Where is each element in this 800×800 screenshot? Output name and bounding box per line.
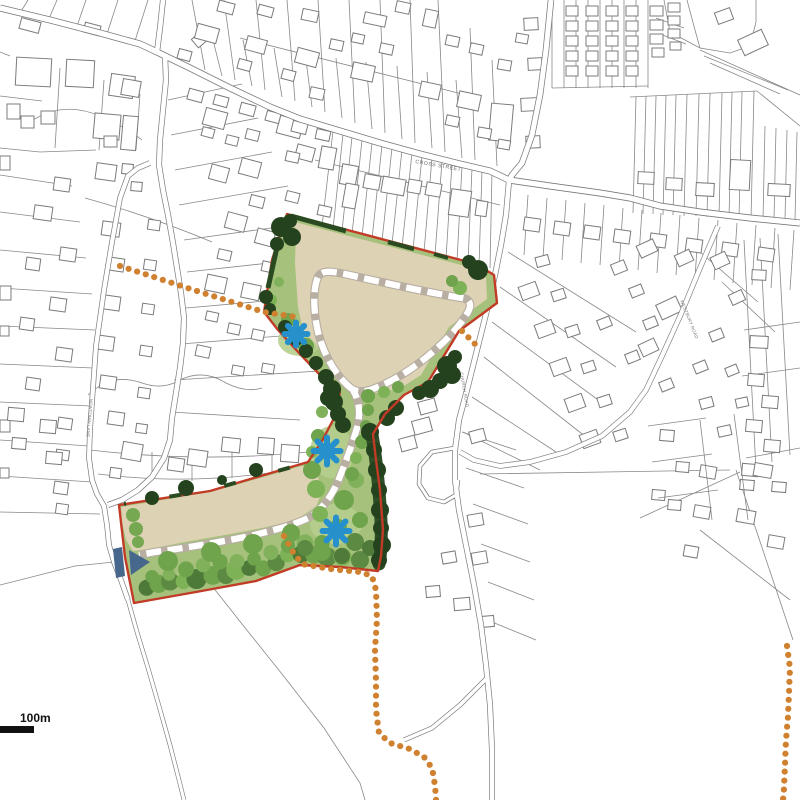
svg-text:100m: 100m [20, 711, 51, 725]
